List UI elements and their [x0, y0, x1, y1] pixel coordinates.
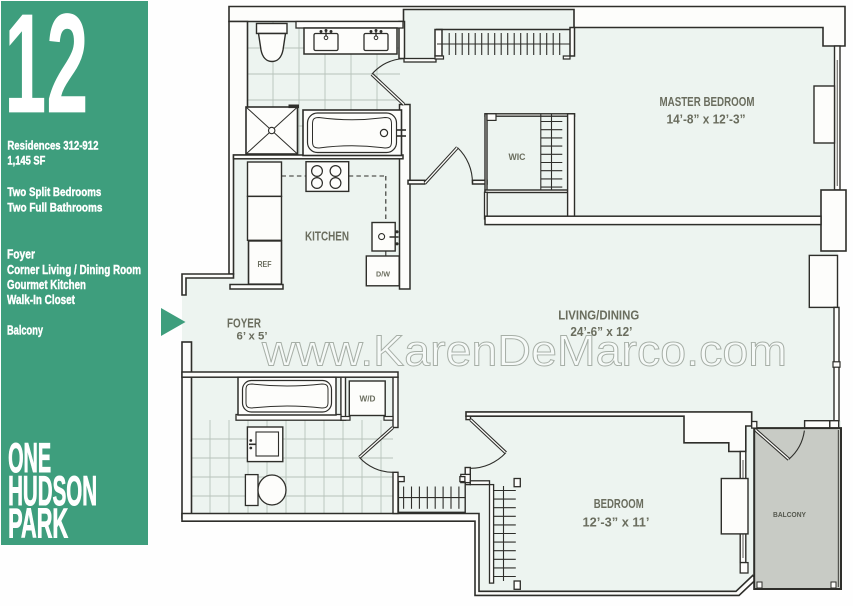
svg-text:12’-3” x 11’: 12’-3” x 11’ — [583, 516, 650, 530]
svg-text:FOYER: FOYER — [227, 317, 261, 331]
svg-text:WIC: WIC — [509, 152, 526, 163]
svg-text:D/W: D/W — [376, 272, 390, 279]
svg-text:Corner Living / Dining Room: Corner Living / Dining Room — [7, 263, 141, 277]
svg-text:KITCHEN: KITCHEN — [305, 230, 349, 244]
svg-text:REF: REF — [258, 260, 272, 269]
svg-text:Residences 312-912: Residences 312-912 — [7, 139, 98, 153]
svg-text:Balcony: Balcony — [7, 324, 43, 338]
svg-text:1,145 SF: 1,145 SF — [7, 154, 45, 168]
svg-text:LIVING/DINING: LIVING/DINING — [558, 308, 639, 323]
svg-text:Gourmet Kitchen: Gourmet Kitchen — [7, 278, 86, 292]
svg-text:6’ x 5’: 6’ x 5’ — [237, 331, 268, 343]
svg-text:W/D: W/D — [360, 395, 376, 404]
svg-text:24’-6” x 12’: 24’-6” x 12’ — [570, 325, 632, 339]
svg-text:MASTER BEDROOM: MASTER BEDROOM — [660, 95, 755, 109]
svg-text:Two Full Bathrooms: Two Full Bathrooms — [7, 201, 102, 215]
svg-text:Two Split Bedrooms: Two Split Bedrooms — [7, 185, 101, 199]
svg-text:Walk-In Closet: Walk-In Closet — [7, 293, 76, 307]
svg-text:14’-8” x 12’-3”: 14’-8” x 12’-3” — [667, 113, 746, 127]
svg-text:BALCONY: BALCONY — [773, 510, 806, 519]
svg-text:Foyer: Foyer — [7, 248, 35, 262]
svg-text:PARK: PARK — [8, 500, 68, 547]
svg-text:www.KarenDeMarco.com: www.KarenDeMarco.com — [261, 327, 787, 376]
svg-text:12: 12 — [4, 0, 88, 143]
svg-text:BEDROOM: BEDROOM — [594, 497, 644, 511]
